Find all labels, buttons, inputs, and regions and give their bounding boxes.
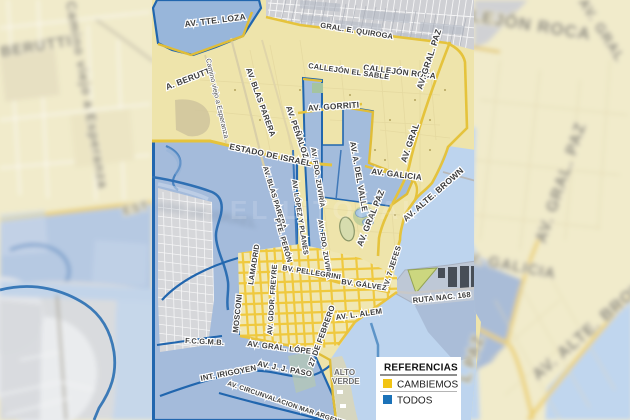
- svg-text:REFERENCIAS: REFERENCIAS: [384, 363, 458, 374]
- svg-text:VERDE: VERDE: [332, 377, 360, 386]
- svg-text:ALTO: ALTO: [334, 368, 355, 377]
- svg-text:EL LITORAL: EL LITORAL: [230, 195, 422, 225]
- svg-text:TODOS: TODOS: [397, 396, 433, 407]
- svg-text:CAMBIEMOS: CAMBIEMOS: [397, 380, 458, 391]
